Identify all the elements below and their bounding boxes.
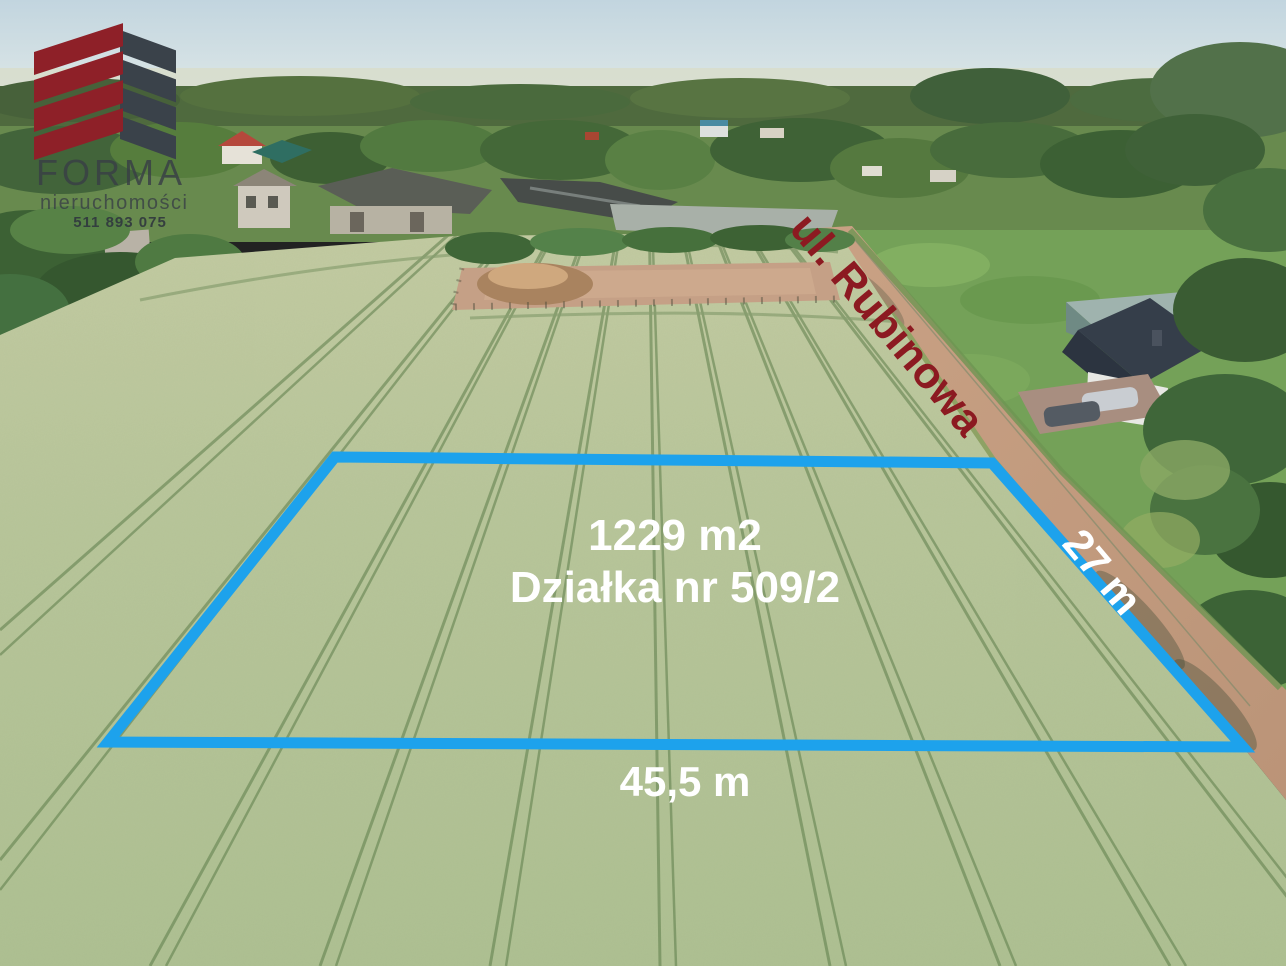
plot-parcel-label: Działka nr 509/2: [475, 562, 875, 614]
company-tagline: nieruchomości: [40, 192, 200, 215]
front-width-label: 45,5 m: [545, 758, 825, 806]
company-phone: 511 893 075: [60, 214, 180, 231]
aerial-photo: FORMA nieruchomości 511 893 075 ul. Rubi…: [0, 0, 1286, 966]
company-logo: FORMA nieruchomości 511 893 075: [0, 0, 240, 250]
plot-area-label: 1229 m2: [475, 510, 875, 562]
plot-info: 1229 m2 Działka nr 509/2: [475, 510, 875, 614]
logo-building-icon: [34, 12, 176, 164]
company-name: FORMA: [36, 152, 186, 194]
